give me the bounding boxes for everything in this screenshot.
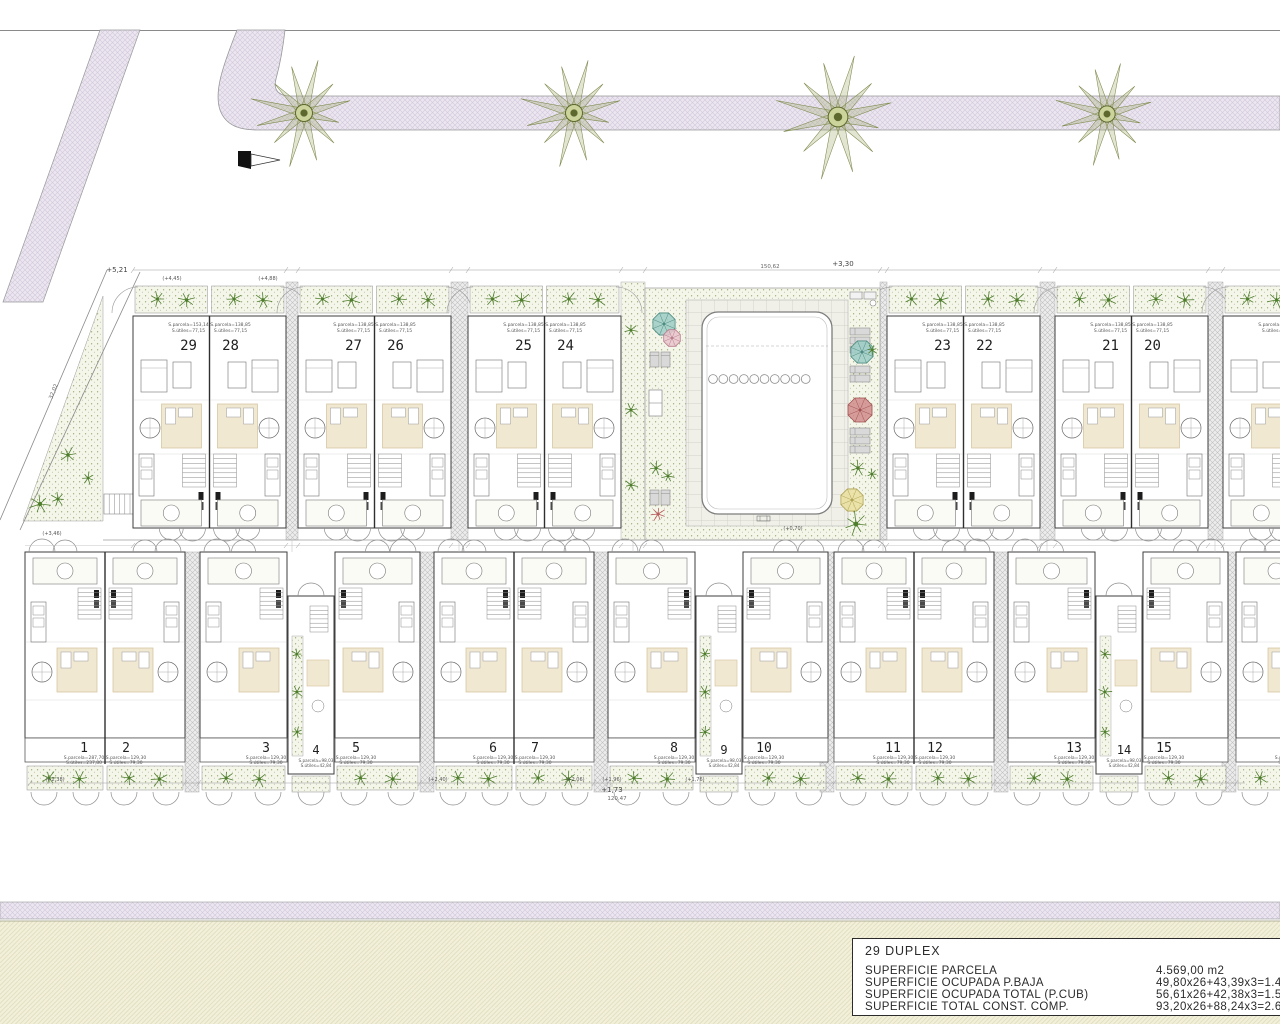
unit-number: 20	[1144, 338, 1161, 354]
unit-number: 2	[122, 741, 130, 756]
entrance-arrow-icon	[238, 151, 280, 169]
unit-area-label: S.parcela=138,85	[375, 322, 416, 328]
roads	[0, 30, 1280, 302]
site-plan-drawing: S.parcela=153,14S.útiles=77,1529S.parcel…	[0, 0, 1280, 1024]
title-block-row: SUPERFICIE TOTAL CONST. COMP. 93,20x26+8…	[865, 1001, 1280, 1013]
unit-area-label: S.parcela=138,85	[503, 322, 544, 328]
unit-area-label: S.parcela=138,85	[545, 322, 586, 328]
unit-number: 27	[345, 338, 362, 354]
pool	[702, 312, 832, 514]
unit-area-label: S.útiles=77,15	[337, 327, 370, 334]
unit-number: 10	[756, 741, 772, 756]
unit-number: 12	[927, 741, 943, 756]
tb-label: SUPERFICIE OCUPADA TOTAL (P.CUB)	[865, 989, 1088, 1001]
unit-area-label: S.útiles=79,30	[249, 759, 282, 766]
unit: 7S.parcela=129,30S.útiles=79,30	[514, 539, 594, 805]
building-pair: S.parcela=129,30S.útiles=79,30S.parcela=…	[1236, 539, 1280, 805]
unit-staggered: 9S.parcela=98,03S.útiles=42,84	[696, 583, 742, 805]
level-label: +5,21	[106, 266, 127, 274]
dim-label: 150,62	[760, 264, 779, 270]
unit: 10S.parcela=129,30S.útiles=79,30	[743, 539, 828, 805]
level-label: (+1,96)	[602, 777, 621, 783]
unit-number: 7	[531, 741, 539, 756]
unit-number: 5	[352, 741, 360, 756]
lounger-icon	[850, 428, 870, 435]
unit-area-label: S.parcela=138,85	[964, 322, 1005, 328]
unit-area-label: S.útiles=77,15	[507, 327, 540, 334]
level-label: (+2,40)	[428, 777, 447, 783]
unit-area-label: S.parcela=138,85	[1258, 322, 1280, 328]
tb-value: 4.569,00 m2	[1156, 965, 1224, 977]
unit-area-label: S.útiles=77,15	[1136, 327, 1169, 334]
tb-label: SUPERFICIE PARCELA	[865, 965, 997, 977]
building-pair: 6S.parcela=129,30S.útiles=79,307S.parcel…	[434, 539, 594, 805]
lounger-icon	[650, 490, 659, 505]
unit-area-label: S.útiles=77,15	[968, 327, 1001, 334]
tb-value: 93,20x26+88,24x3=2.6	[1156, 1001, 1280, 1013]
unit-staggered: 4S.parcela=98,03S.útiles=42,84	[288, 583, 334, 805]
unit: 8S.parcela=129,30S.útiles=79,30	[608, 539, 695, 805]
lounger-icon	[850, 366, 870, 373]
building-pair: S.parcela=138,85S.útiles=77,1523S.parcel…	[866, 286, 1061, 541]
unit-area-label: S.útiles=77,15	[1262, 327, 1280, 334]
umbrella-icon	[664, 330, 681, 347]
lounger-icon	[850, 437, 870, 444]
level-label: (+1,76)	[685, 777, 704, 783]
sidewalk-diagonal	[3, 30, 140, 302]
site-plan-canvas: S.parcela=153,14S.útiles=77,1529S.parcel…	[0, 0, 1280, 1024]
tb-label: SUPERFICIE TOTAL CONST. COMP.	[865, 1001, 1069, 1013]
unit-area-label: S.útiles=77,15	[549, 327, 582, 334]
unit-area-label: S.útiles=77,15	[172, 327, 205, 334]
unit: 13S.parcela=129,30S.útiles=79,30	[1008, 539, 1095, 805]
unit: 15S.parcela=129,30S.útiles=79,30	[1143, 539, 1228, 805]
level-label: (+2,38)	[45, 777, 64, 783]
unit-area-label: S.útiles=79,30	[109, 759, 142, 766]
unit-area-label: S.útiles=77,15	[379, 327, 412, 334]
unit-number: 1	[80, 741, 88, 756]
unit-number: 26	[387, 338, 404, 354]
dim-label: 32,02	[48, 383, 59, 400]
unit-number: 21	[1102, 338, 1119, 354]
title-block-row: SUPERFICIE OCUPADA P.BAJA 49,80x26+43,39…	[865, 977, 1280, 989]
unit-number: 6	[489, 741, 497, 756]
unit-number: 3	[262, 741, 270, 756]
unit-number: 23	[934, 338, 951, 354]
building-triple: 3S.parcela=129,30S.útiles=79,304S.parcel…	[200, 539, 420, 805]
building-pair: 11S.parcela=129,30S.útiles=79,3012S.parc…	[834, 539, 994, 805]
unit-area-label: S.útiles=79,30	[476, 759, 509, 766]
building-pair: S.parcela=138,85S.útiles=77,1521S.parcel…	[1034, 286, 1229, 541]
unit-area-label: S.útiles=79,30	[918, 759, 951, 766]
unit: 5S.parcela=129,30S.útiles=79,30	[335, 539, 420, 805]
unit: S.parcela=129,30S.útiles=79,30	[1236, 539, 1280, 805]
unit-area-label: S.útiles=79,30	[657, 759, 690, 766]
unit-area-label: S.útiles=77,15	[214, 327, 247, 334]
unit-staggered: 14S.parcela=98,03S.útiles=42,84	[1096, 583, 1142, 805]
unit-number: 22	[976, 338, 993, 354]
title-block: 29 DUPLEX SUPERFICIE PARCELA 4.569,00 m2…	[852, 938, 1280, 1016]
lounger-icon	[850, 328, 870, 335]
unit: 1S.parcela=287,70S.útiles=237,80	[25, 539, 105, 805]
unit-number: 9	[720, 743, 727, 757]
umbrella-icon	[848, 398, 872, 422]
dim-label: 120,47	[607, 796, 627, 802]
lounger-icon	[661, 490, 670, 505]
building-pair: S.parcela=153,14S.útiles=77,1529S.parcel…	[112, 286, 307, 541]
unit: 12S.parcela=129,30S.útiles=79,30	[914, 539, 994, 805]
unit-area-label: S.parcela=138,85	[210, 322, 251, 328]
unit-number: 14	[1117, 743, 1131, 757]
unit-area-label: S.útiles=77,15	[1094, 327, 1127, 334]
unit-number: 15	[1156, 741, 1172, 756]
tb-label: SUPERFICIE OCUPADA P.BAJA	[865, 977, 1044, 989]
level-label: +3,30	[832, 260, 853, 268]
unit-number: 4	[312, 743, 319, 757]
unit-number: 25	[515, 338, 532, 354]
title-block-title: 29 DUPLEX	[865, 944, 941, 958]
unit-number: 28	[222, 338, 239, 354]
lounger-icon	[650, 352, 659, 367]
building-pair: 1S.parcela=287,70S.útiles=237,802S.parce…	[25, 539, 185, 805]
level-label: (+0,70)	[783, 526, 802, 532]
unit-number: 8	[670, 741, 678, 756]
unit-area-label: S.útiles=77,15	[926, 327, 959, 334]
tb-value: 56,61x26+42,38x3=1.5	[1156, 989, 1280, 1001]
level-label: (+4,88)	[258, 276, 277, 282]
pool-courtyard	[645, 288, 880, 540]
unit: 6S.parcela=129,30S.útiles=79,30	[434, 539, 514, 805]
unit-area-label: S.parcela=138,85	[333, 322, 374, 328]
unit: 11S.parcela=129,30S.útiles=79,30	[834, 539, 914, 805]
lounger-icon	[850, 375, 870, 382]
level-label: (+2,06)	[565, 777, 584, 783]
unit-area-label: S.parcela=138,85	[1090, 322, 1131, 328]
lounger-icon	[661, 352, 670, 367]
unit-area-label: S.parcela=153,14	[168, 322, 209, 328]
umbrella-icon	[841, 489, 863, 511]
level-label: (+4,45)	[162, 276, 181, 282]
unit-area-label: S.útiles=79,30	[1057, 759, 1090, 766]
level-label: +1,73	[601, 786, 622, 794]
building-triple: 13S.parcela=129,30S.útiles=79,3014S.parc…	[1008, 539, 1228, 805]
unit-area-label: S.útiles=79,30	[876, 759, 909, 766]
unit-number: 24	[557, 338, 574, 354]
unit-area-label: S.útiles=42,84	[1109, 763, 1140, 768]
unit-number: 29	[180, 338, 197, 354]
building-pair: S.parcela=138,85S.útiles=77,1525S.parcel…	[447, 286, 642, 541]
unit-area-label: S.útiles=237,80	[66, 759, 102, 766]
building-pair: S.parcela=138,85S.útiles=77,1527S.parcel…	[277, 286, 472, 541]
unit: 2S.parcela=129,30S.útiles=79,30	[105, 539, 185, 805]
unit-area-label: S.parcela=138,85	[1132, 322, 1173, 328]
unit-area-label: S.útiles=42,84	[709, 763, 740, 768]
unit-number: 11	[885, 741, 901, 756]
level-label: (+3,46)	[42, 531, 61, 537]
unit-area-label: S.parcela=138,85	[922, 322, 963, 328]
lounger-icon	[850, 446, 870, 453]
title-block-row: SUPERFICIE OCUPADA TOTAL (P.CUB) 56,61x2…	[865, 989, 1280, 1001]
unit-area-label: S.útiles=42,84	[301, 763, 332, 768]
unit-area-label: S.útiles=79,30	[1147, 759, 1180, 766]
garden-triangle	[0, 270, 140, 530]
unit-area-label: S.útiles=79,30	[339, 759, 372, 766]
unit-area-label: S.útiles=79,30	[518, 759, 551, 766]
unit: 3S.parcela=129,30S.útiles=79,30	[200, 539, 287, 805]
unit-area-label: S.útiles=79,30	[747, 759, 780, 766]
title-block-row: SUPERFICIE PARCELA 4.569,00 m2	[865, 965, 1280, 977]
unit-number: 13	[1066, 741, 1082, 756]
tb-value: 49,80x26+43,39x3=1.4	[1156, 977, 1280, 989]
building-triple: 8S.parcela=129,30S.útiles=79,309S.parcel…	[608, 539, 828, 805]
